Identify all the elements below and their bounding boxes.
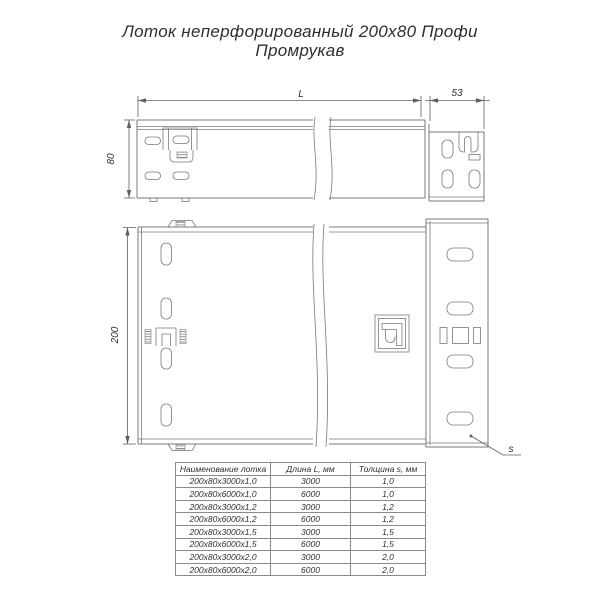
bottom-tab: [182, 198, 189, 202]
cell-thickness: 1,2: [351, 513, 426, 526]
plan-view-connector: [426, 219, 488, 447]
technical-drawing-page: Лоток неперфорированный 200х80 Профи Про…: [0, 0, 600, 600]
dimension-80: 80: [106, 120, 135, 198]
thickness-leader: s: [470, 435, 522, 456]
side-view-dimensions: L 53 80: [106, 88, 490, 198]
cell-name: 200х80х6000х1,5: [176, 538, 271, 551]
plan-view-edge-latch-top: [168, 221, 196, 228]
dimension-L: L: [138, 89, 421, 117]
cell-length: 3000: [271, 551, 351, 564]
cell-length: 3000: [271, 500, 351, 513]
cell-thickness: 1,2: [351, 500, 426, 513]
cell-name: 200х80х3000х1,0: [176, 475, 271, 488]
side-view-latch: [163, 128, 197, 162]
table-row: 200х80х6000х1,2 6000 1,2: [176, 513, 426, 526]
dim-label-L: L: [298, 89, 304, 100]
header-thickness: Толщина s, мм: [351, 463, 426, 476]
dimension-200: 200: [110, 228, 136, 445]
cell-thickness: 1,0: [351, 488, 426, 501]
dim-label-200: 200: [110, 326, 121, 344]
table-row: 200х80х3000х2,0 3000 2,0: [176, 551, 426, 564]
cell-thickness: 1,5: [351, 538, 426, 551]
side-view-connector: [429, 132, 484, 201]
bracket-rib-hatch: [180, 330, 186, 344]
cell-length: 3000: [271, 525, 351, 538]
cell-length: 6000: [271, 563, 351, 576]
cell-length: 6000: [271, 513, 351, 526]
table-row: 200х80х6000х1,0 6000 1,0: [176, 488, 426, 501]
cell-length: 3000: [271, 475, 351, 488]
latch-hatch: [177, 152, 187, 158]
table-row: 200х80х3000х1,5 3000 1,5: [176, 525, 426, 538]
size-table: Наименование лотка Длина L, мм Толщина s…: [175, 462, 426, 576]
side-view: [137, 117, 484, 202]
plan-view-break-lines: [313, 224, 328, 447]
table-row: 200х80х6000х2,0 6000 2,0: [176, 563, 426, 576]
cell-name: 200х80х6000х2,0: [176, 563, 271, 576]
plan-view-bracket: [145, 328, 186, 346]
dim-label-53: 53: [451, 88, 463, 99]
table-row: 200х80х3000х1,0 3000 1,0: [176, 475, 426, 488]
bottom-tab: [150, 198, 157, 202]
cell-length: 6000: [271, 488, 351, 501]
cell-name: 200х80х3000х1,2: [176, 500, 271, 513]
dim-label-80: 80: [106, 153, 117, 165]
cell-name: 200х80х6000х1,0: [176, 488, 271, 501]
table-header-row: Наименование лотка Длина L, мм Толщина s…: [176, 463, 426, 476]
cell-name: 200х80х6000х1,2: [176, 513, 271, 526]
cell-name: 200х80х3000х2,0: [176, 551, 271, 564]
bracket-rib-hatch: [145, 330, 151, 344]
cell-name: 200х80х3000х1,5: [176, 525, 271, 538]
plan-view-slots: [161, 243, 172, 426]
table-row: 200х80х6000х1,5 6000 1,5: [176, 538, 426, 551]
cell-length: 6000: [271, 538, 351, 551]
dimension-53: 53: [425, 88, 490, 129]
cell-thickness: 2,0: [351, 563, 426, 576]
plan-view: [138, 219, 488, 451]
cell-thickness: 1,5: [351, 525, 426, 538]
promrukav-logo-stamp: [375, 315, 409, 352]
dim-label-s: s: [509, 444, 514, 455]
header-length: Длина L, мм: [271, 463, 351, 476]
cell-thickness: 1,0: [351, 475, 426, 488]
cell-thickness: 2,0: [351, 551, 426, 564]
plan-view-edge-latch-bottom: [168, 444, 196, 451]
header-name: Наименование лотка: [176, 463, 271, 476]
table-row: 200х80х3000х1,2 3000 1,2: [176, 500, 426, 513]
